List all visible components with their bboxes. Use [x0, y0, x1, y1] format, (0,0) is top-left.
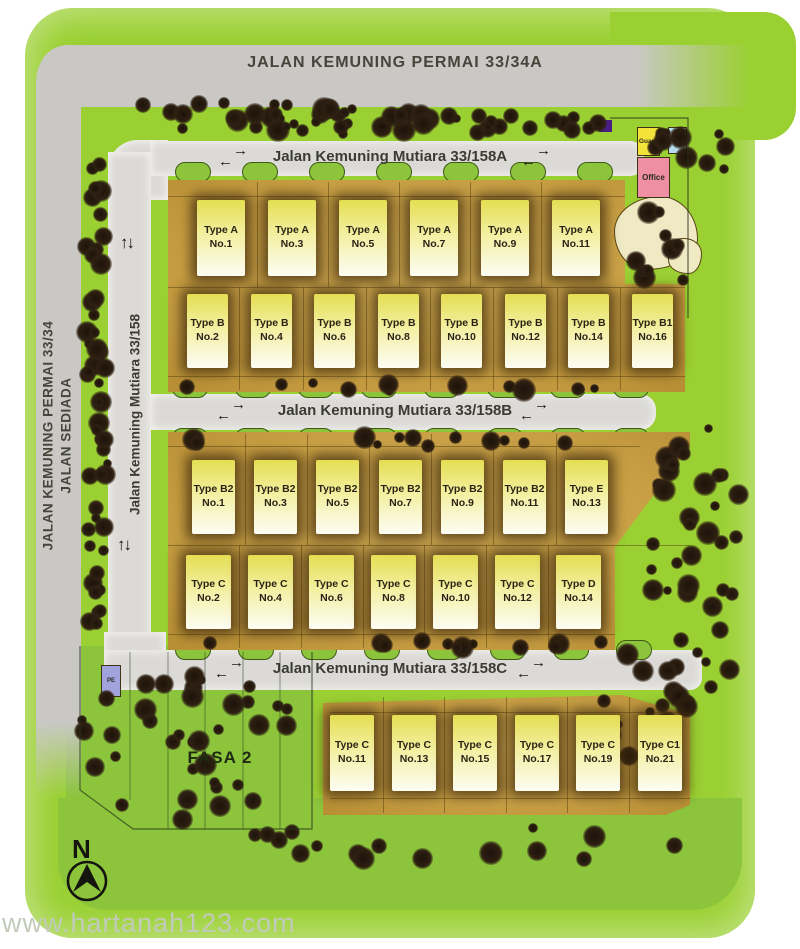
- tree-icon: [94, 227, 113, 246]
- house-type-label: Type B: [190, 317, 224, 331]
- two-way-arrow-icon: →←: [521, 146, 551, 168]
- tree-icon: [203, 636, 217, 650]
- house-type-label: Type C: [500, 578, 534, 592]
- tree-icon: [93, 207, 108, 222]
- tree-icon: [308, 378, 318, 388]
- two-way-arrow-icon: →←: [214, 658, 244, 680]
- tree-icon: [222, 693, 245, 716]
- tree-icon: [371, 838, 387, 854]
- tree-icon: [670, 238, 685, 253]
- house-lot-row-type-b-2: Type BNo.4: [251, 294, 292, 368]
- house-type-label: Type C: [458, 739, 492, 753]
- house-type-label: Type A: [488, 224, 522, 238]
- tree-icon: [676, 446, 691, 461]
- tree-icon: [284, 824, 300, 840]
- tree-icon: [666, 837, 683, 854]
- house-lot-row-type-b2-3: Type B2No.5: [316, 460, 359, 534]
- house-type-label: Type C: [397, 739, 431, 753]
- tree-icon: [518, 437, 530, 449]
- tree-icon: [94, 378, 104, 388]
- tree-icon: [469, 124, 486, 141]
- tree-icon: [98, 690, 115, 707]
- house-type-label: Type A: [417, 224, 451, 238]
- tree-icon: [597, 694, 611, 708]
- house-lot-row-type-c-4: Type CNo.8: [371, 555, 416, 629]
- tree-icon: [93, 604, 107, 618]
- tree-icon: [702, 596, 723, 617]
- tree-icon: [248, 714, 270, 736]
- tree-icon: [90, 617, 103, 630]
- tree-icon: [88, 585, 103, 600]
- tree-icon: [704, 424, 713, 433]
- house-number-label: No.21: [646, 753, 675, 767]
- tree-icon: [571, 382, 585, 396]
- tree-icon: [653, 206, 665, 218]
- tree-icon: [681, 545, 702, 566]
- house-type-label: Type B1: [632, 317, 672, 331]
- tree-icon: [209, 795, 231, 817]
- tree-icon: [449, 431, 462, 444]
- house-type-label: Type B: [444, 317, 478, 331]
- house-lot-row-type-a-1: Type ANo.1: [197, 200, 245, 276]
- tree-icon: [544, 111, 562, 129]
- house-lot-row-type-c-south-3: Type CNo.15: [453, 715, 497, 791]
- house-number-label: No.10: [447, 331, 476, 345]
- tree-icon: [619, 746, 639, 766]
- house-lot-row-type-a-5: Type ANo.9: [481, 200, 529, 276]
- house-type-label: Type B: [381, 317, 415, 331]
- tree-icon: [103, 726, 121, 744]
- house-lot-row-type-b-7: Type BNo.14: [568, 294, 609, 368]
- tree-icon: [512, 639, 529, 656]
- house-number-label: No.7: [389, 497, 412, 511]
- tree-icon: [527, 841, 547, 861]
- tree-icon: [677, 274, 689, 286]
- label-jalan-kemuning-permai-33-34a: JALAN KEMUNING PERMAI 33/34A: [95, 54, 695, 72]
- house-lot-row-type-b-1: Type BNo.2: [187, 294, 228, 368]
- house-lot-row-type-c-south-5: Type CNo.19: [576, 715, 620, 791]
- tree-icon: [377, 637, 393, 653]
- tree-icon: [110, 751, 121, 762]
- two-way-arrow-icon: →←: [519, 400, 549, 422]
- tree-icon: [412, 848, 433, 869]
- label-outer-left-line1: JALAN KEMUNING PERMAI 33/34: [39, 261, 57, 611]
- tree-icon: [320, 99, 340, 119]
- house-type-label: Type C1: [640, 739, 680, 753]
- house-number-label: No.8: [387, 331, 410, 345]
- tree-icon: [675, 146, 698, 169]
- house-number-label: No.5: [326, 497, 349, 511]
- tree-icon: [173, 729, 185, 741]
- tree-icon: [632, 660, 654, 682]
- house-number-label: No.19: [584, 753, 613, 767]
- tree-icon: [447, 375, 468, 396]
- tree-icon: [172, 809, 193, 830]
- tree-icon: [142, 713, 158, 729]
- house-type-label: Type B: [317, 317, 351, 331]
- tree-icon: [225, 109, 243, 127]
- house-lot-row-type-b-5: Type BNo.10: [441, 294, 482, 368]
- tree-icon: [77, 715, 87, 725]
- house-number-label: No.1: [210, 238, 233, 252]
- house-lot-row-type-b2-4: Type B2No.7: [379, 460, 422, 534]
- north-arrow-icon: [64, 858, 110, 904]
- tree-icon: [719, 659, 740, 680]
- tree-icon: [641, 264, 654, 277]
- tree-icon: [340, 381, 357, 398]
- watermark-text: www.hartanah123.com: [2, 908, 296, 939]
- house-number-label: No.2: [197, 592, 220, 606]
- house-type-label: Type B2: [504, 483, 544, 497]
- tree-icon: [213, 724, 224, 735]
- house-number-label: No.16: [638, 331, 667, 345]
- house-number-label: No.15: [461, 753, 490, 767]
- house-number-label: No.12: [503, 592, 532, 606]
- house-lot-row-type-a-4: Type ANo.7: [410, 200, 458, 276]
- house-number-label: No.9: [494, 238, 517, 252]
- house-number-label: No.7: [423, 238, 446, 252]
- two-way-arrow-icon: →←: [516, 658, 546, 680]
- house-lot-row-type-b2-5: Type B2No.9: [441, 460, 484, 534]
- tree-icon: [291, 844, 310, 863]
- house-type-label: Type B: [254, 317, 288, 331]
- house-type-label: Type A: [204, 224, 238, 238]
- tree-icon: [296, 124, 309, 137]
- tree-icon: [673, 632, 689, 648]
- tree-icon: [88, 181, 103, 196]
- verge-bush: [577, 162, 613, 182]
- tree-icon: [646, 564, 657, 575]
- tree-icon: [154, 674, 174, 694]
- house-lot-row-type-b-3: Type BNo.6: [314, 294, 355, 368]
- tree-icon: [440, 107, 458, 125]
- house-number-label: No.13: [572, 497, 601, 511]
- house-lot-row-type-a-2: Type ANo.3: [268, 200, 316, 276]
- house-type-label: Type C: [335, 739, 369, 753]
- tree-icon: [95, 358, 115, 378]
- house-lot-row-type-b-6: Type BNo.12: [505, 294, 546, 368]
- house-lot-row-type-b-8: Type B1No.16: [632, 294, 673, 368]
- house-lot-row-type-b2-7: Type ENo.13: [565, 460, 608, 534]
- tree-icon: [98, 545, 109, 556]
- tree-icon: [86, 338, 108, 360]
- tree-icon: [333, 119, 349, 135]
- tree-icon: [719, 164, 729, 174]
- tree-icon: [86, 289, 105, 308]
- house-type-label: Type B2: [255, 483, 295, 497]
- tree-icon: [275, 378, 288, 391]
- house-number-label: No.13: [400, 753, 429, 767]
- tree-icon: [704, 680, 718, 694]
- tree-icon: [393, 107, 409, 123]
- house-number-label: No.11: [338, 753, 366, 767]
- house-type-label: Type C: [191, 578, 225, 592]
- tree-icon: [413, 632, 431, 650]
- tree-icon: [522, 120, 538, 136]
- verge-bush: [309, 162, 345, 182]
- house-type-label: Type D: [561, 578, 595, 592]
- house-lot-row-type-c-south-6: Type C1No.21: [638, 715, 682, 791]
- tree-icon: [528, 823, 538, 833]
- tree-icon: [421, 439, 435, 453]
- house-number-label: No.6: [323, 331, 346, 345]
- tree-icon: [190, 95, 208, 113]
- house-number-label: No.4: [260, 331, 283, 345]
- tree-icon: [583, 825, 606, 848]
- tree-icon: [181, 685, 204, 708]
- tree-icon: [698, 154, 716, 172]
- tree-icon: [92, 157, 107, 172]
- tree-icon: [711, 468, 726, 483]
- tree-icon: [378, 374, 399, 395]
- tree-icon: [716, 137, 735, 156]
- tree-icon: [548, 639, 563, 654]
- tree-icon: [89, 565, 105, 581]
- tree-icon: [468, 639, 478, 649]
- tree-icon: [677, 574, 700, 597]
- tree-icon: [115, 798, 129, 812]
- two-way-arrow-vertical-icon: ↑↓: [120, 233, 133, 253]
- office: Office: [637, 157, 670, 198]
- verge-bush: [175, 162, 211, 182]
- tree-icon: [563, 121, 581, 139]
- tree-icon: [90, 253, 112, 275]
- tree-icon: [218, 97, 230, 109]
- tree-icon: [189, 435, 205, 451]
- site-plan: Guard PE Office PE Type ANo.1Type ANo.3T…: [0, 0, 800, 949]
- tree-icon: [412, 112, 435, 135]
- house-type-label: Type A: [559, 224, 593, 238]
- house-type-label: Type A: [346, 224, 380, 238]
- tree-icon: [281, 99, 293, 111]
- tree-icon: [259, 826, 276, 843]
- tree-icon: [582, 121, 596, 135]
- verge-bush: [376, 162, 412, 182]
- tree-icon: [471, 108, 487, 124]
- house-type-label: Type E: [570, 483, 604, 497]
- house-type-label: Type C: [581, 739, 615, 753]
- house-number-label: No.17: [523, 753, 552, 767]
- house-type-label: Type C: [253, 578, 287, 592]
- label-jalan-kemuning-mutiara-158: Jalan Kemuning Mutiara 33/158: [128, 300, 143, 530]
- tree-icon: [276, 715, 297, 736]
- tree-icon: [243, 680, 256, 693]
- tree-icon: [268, 107, 283, 122]
- tree-icon: [728, 484, 749, 505]
- tree-icon: [85, 757, 105, 777]
- tree-icon: [710, 501, 720, 511]
- house-number-label: No.14: [564, 592, 593, 606]
- house-number-label: No.5: [352, 238, 375, 252]
- tree-icon: [91, 424, 103, 436]
- tree-icon: [557, 435, 573, 451]
- house-lot-row-type-c-1: Type CNo.2: [186, 555, 231, 629]
- tree-icon: [590, 384, 599, 393]
- tree-icon: [244, 792, 262, 810]
- tree-icon: [82, 365, 96, 379]
- tree-icon: [353, 426, 376, 449]
- tree-icon: [232, 779, 244, 791]
- tree-icon: [404, 429, 422, 447]
- house-type-label: Type B2: [442, 483, 482, 497]
- house-lot-row-type-b2-6: Type B2No.11: [503, 460, 546, 534]
- tree-icon: [642, 579, 664, 601]
- verge-bush: [443, 162, 479, 182]
- house-lot-row-type-b2-1: Type B2No.1: [192, 460, 235, 534]
- label-fasa-2: FASA 2: [150, 748, 290, 768]
- house-lot-row-type-c-2: Type CNo.4: [248, 555, 293, 629]
- tree-icon: [179, 379, 195, 395]
- tree-icon: [481, 431, 501, 451]
- house-lot-row-type-a-6: Type ANo.11: [552, 200, 600, 276]
- tree-icon: [244, 103, 266, 125]
- tree-icon: [89, 327, 100, 338]
- house-lot-row-type-c-south-2: Type CNo.13: [392, 715, 436, 791]
- house-lot-row-type-c-south-4: Type CNo.17: [515, 715, 559, 791]
- tree-icon: [616, 643, 639, 666]
- tree-icon: [512, 378, 536, 402]
- house-number-label: No.14: [574, 331, 603, 345]
- tree-icon: [136, 674, 156, 694]
- tree-icon: [209, 777, 220, 788]
- tree-icon: [173, 104, 193, 124]
- house-type-label: Type B: [571, 317, 605, 331]
- house-number-label: No.4: [259, 592, 282, 606]
- tree-icon: [135, 97, 151, 113]
- house-lot-row-type-b2-2: Type B2No.3: [254, 460, 297, 534]
- tree-icon: [282, 122, 291, 131]
- house-number-label: No.12: [511, 331, 540, 345]
- tree-icon: [714, 535, 729, 550]
- house-number-label: No.3: [264, 497, 287, 511]
- house-type-label: Type B2: [193, 483, 233, 497]
- house-lot-row-type-b-4: Type BNo.8: [378, 294, 419, 368]
- house-type-label: Type C: [314, 578, 348, 592]
- tree-icon: [646, 537, 660, 551]
- office-label: Office: [642, 173, 665, 182]
- tree-icon: [479, 841, 503, 865]
- house-number-label: No.11: [562, 238, 590, 252]
- tree-icon: [272, 700, 284, 712]
- pe-west-label: PE: [107, 678, 115, 684]
- two-way-arrow-vertical-icon: ↑↓: [117, 535, 130, 555]
- tree-icon: [88, 500, 104, 516]
- house-number-label: No.10: [441, 592, 470, 606]
- house-type-label: Type B2: [317, 483, 357, 497]
- tree-icon: [177, 123, 188, 134]
- tree-icon: [671, 557, 683, 569]
- tree-icon: [658, 661, 678, 681]
- lot-block-middle: [168, 432, 690, 650]
- tree-icon: [653, 131, 673, 151]
- tree-icon: [94, 517, 114, 537]
- tree-icon: [352, 847, 375, 870]
- tree-icon: [311, 840, 323, 852]
- house-lot-row-type-c-5: Type CNo.10: [433, 555, 478, 629]
- tree-icon: [701, 657, 711, 667]
- house-number-label: No.3: [281, 238, 304, 252]
- tree-icon: [659, 229, 672, 242]
- tree-icon: [442, 638, 454, 650]
- tree-icon: [594, 635, 608, 649]
- house-number-label: No.1: [202, 497, 225, 511]
- house-lot-row-type-a-3: Type ANo.5: [339, 200, 387, 276]
- house-number-label: No.6: [320, 592, 343, 606]
- house-number-label: No.2: [196, 331, 219, 345]
- house-type-label: Type B2: [380, 483, 420, 497]
- tree-icon: [716, 583, 730, 597]
- tree-icon: [88, 309, 100, 321]
- tree-icon: [94, 397, 104, 407]
- house-lot-row-type-c-6: Type CNo.12: [495, 555, 540, 629]
- tree-icon: [692, 647, 703, 658]
- two-way-arrow-icon: →←: [216, 400, 246, 422]
- house-lot-row-type-c-7: Type DNo.14: [556, 555, 601, 629]
- house-number-label: No.9: [451, 497, 474, 511]
- house-type-label: Type C: [376, 578, 410, 592]
- tree-icon: [576, 851, 592, 867]
- house-type-label: Type B: [508, 317, 542, 331]
- tree-icon: [94, 467, 109, 482]
- house-lot-row-type-c-south-1: Type CNo.11: [330, 715, 374, 791]
- tree-icon: [663, 586, 672, 595]
- label-jalan-kemuning-permai-33-34: JALAN KEMUNING PERMAI 33/34 JALAN SEDIAD…: [39, 261, 74, 611]
- tree-icon: [683, 517, 697, 531]
- tree-icon: [84, 540, 96, 552]
- house-type-label: Type C: [438, 578, 472, 592]
- two-way-arrow-icon: →←: [218, 146, 248, 168]
- house-lot-row-type-c-3: Type CNo.6: [309, 555, 354, 629]
- house-type-label: Type A: [275, 224, 309, 238]
- tree-icon: [347, 104, 357, 114]
- tree-icon: [711, 621, 729, 639]
- tree-icon: [729, 530, 743, 544]
- tree-icon: [652, 478, 676, 502]
- house-number-label: No.11: [510, 497, 538, 511]
- house-number-label: No.8: [382, 592, 405, 606]
- tree-icon: [177, 789, 198, 810]
- label-jalan-sediada: JALAN SEDIADA: [57, 261, 75, 611]
- house-type-label: Type C: [520, 739, 554, 753]
